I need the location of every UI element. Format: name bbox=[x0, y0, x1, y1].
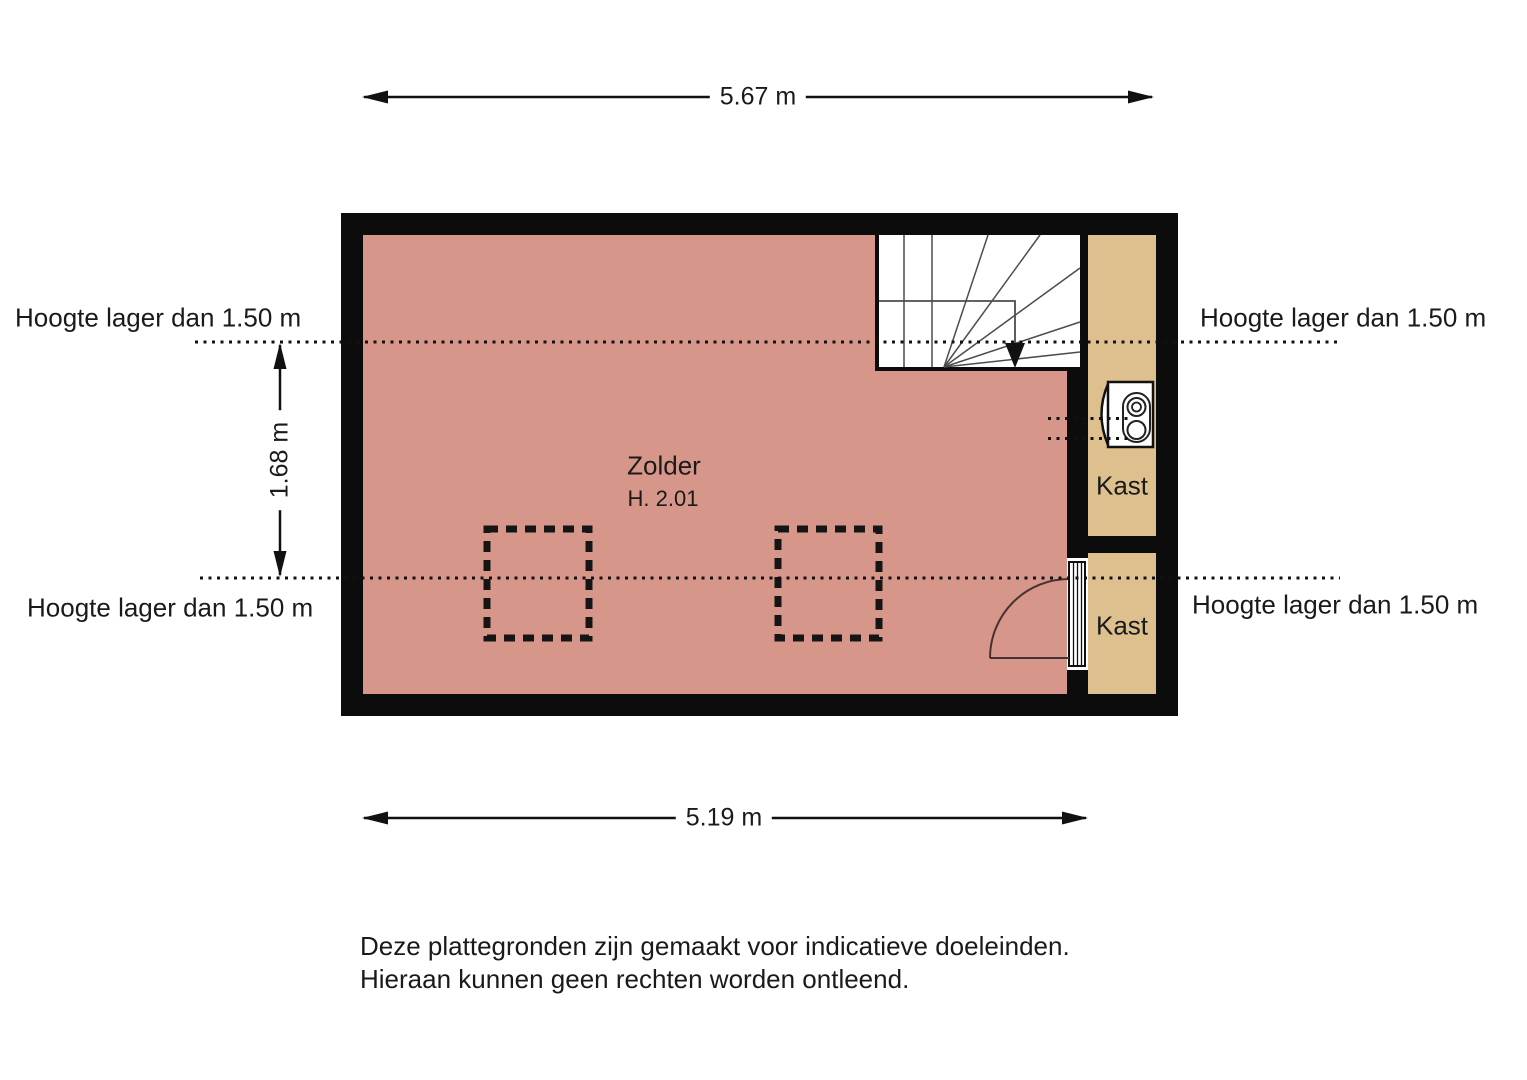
floor-plan-page: 5.67 m 5.19 m 1.68 m Hoogte lager dan 1.… bbox=[0, 0, 1527, 1080]
height-annotation-bottom-left: Hoogte lager dan 1.50 m bbox=[27, 593, 313, 624]
dimension-label-top: 5.67 m bbox=[710, 83, 806, 112]
height-annotation-bottom-right: Hoogte lager dan 1.50 m bbox=[1192, 590, 1478, 621]
dimension-label-bottom: 5.19 m bbox=[676, 804, 772, 833]
closet-top-label: Kast bbox=[1096, 471, 1148, 502]
disclaimer-text: Deze plattegronden zijn gemaakt voor ind… bbox=[360, 930, 1070, 996]
staircase-icon bbox=[875, 235, 1080, 371]
height-annotation-top-right: Hoogte lager dan 1.50 m bbox=[1200, 303, 1486, 334]
floor-plan-drawing bbox=[0, 0, 1527, 1080]
disclaimer-line-1: Deze plattegronden zijn gemaakt voor ind… bbox=[360, 930, 1070, 963]
room-label-zolder: Zolder bbox=[627, 451, 701, 482]
closet-bottom-label: Kast bbox=[1096, 611, 1148, 642]
dimension-label-left: 1.68 m bbox=[266, 410, 295, 510]
disclaimer-line-2: Hieraan kunnen geen rechten worden ontle… bbox=[360, 963, 1070, 996]
room-height-label: H. 2.01 bbox=[628, 486, 699, 512]
height-annotation-top-left: Hoogte lager dan 1.50 m bbox=[15, 303, 301, 334]
